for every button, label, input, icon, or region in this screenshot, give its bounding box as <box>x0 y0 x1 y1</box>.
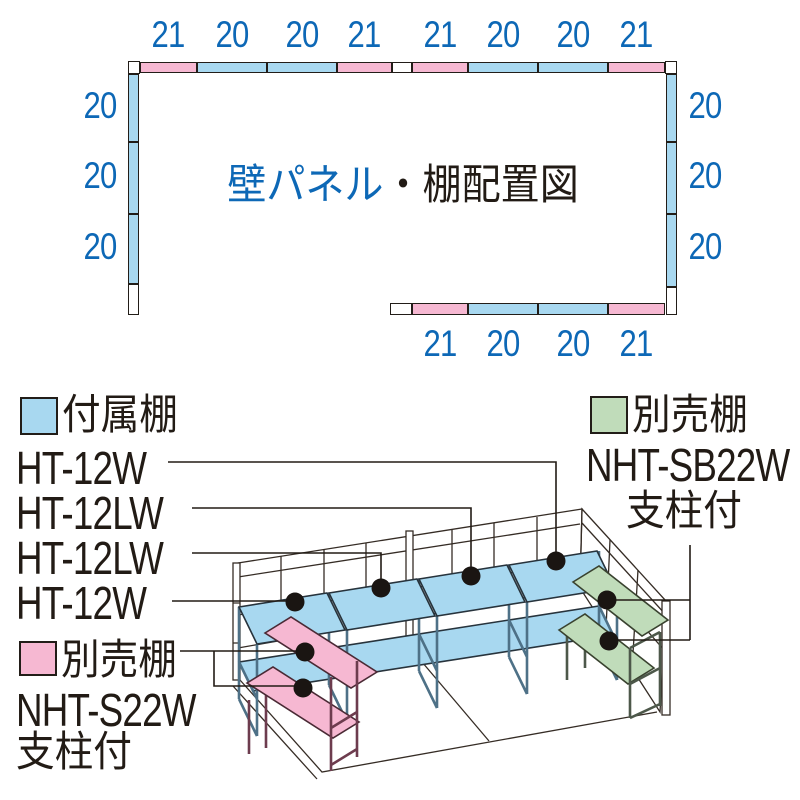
isometric-drawing <box>0 0 800 800</box>
shelf-dot-ht12lw-left <box>372 579 391 598</box>
shelf-layout-diagram: 21 20 20 21 21 20 20 21 20 20 20 20 20 2… <box>0 0 800 800</box>
shelf-dot-ht12w-left <box>286 593 305 612</box>
shelf-dot-nht-sb22w-upper <box>598 591 617 610</box>
shelf-dot-nht-s22w-lower <box>294 679 313 698</box>
shelf-dot-ht12lw-right <box>462 567 481 586</box>
shelf-dot-ht12w-right <box>547 552 566 571</box>
shelf-dot-nht-sb22w-lower <box>600 632 619 651</box>
shelf-dot-nht-s22w-upper <box>296 643 315 662</box>
